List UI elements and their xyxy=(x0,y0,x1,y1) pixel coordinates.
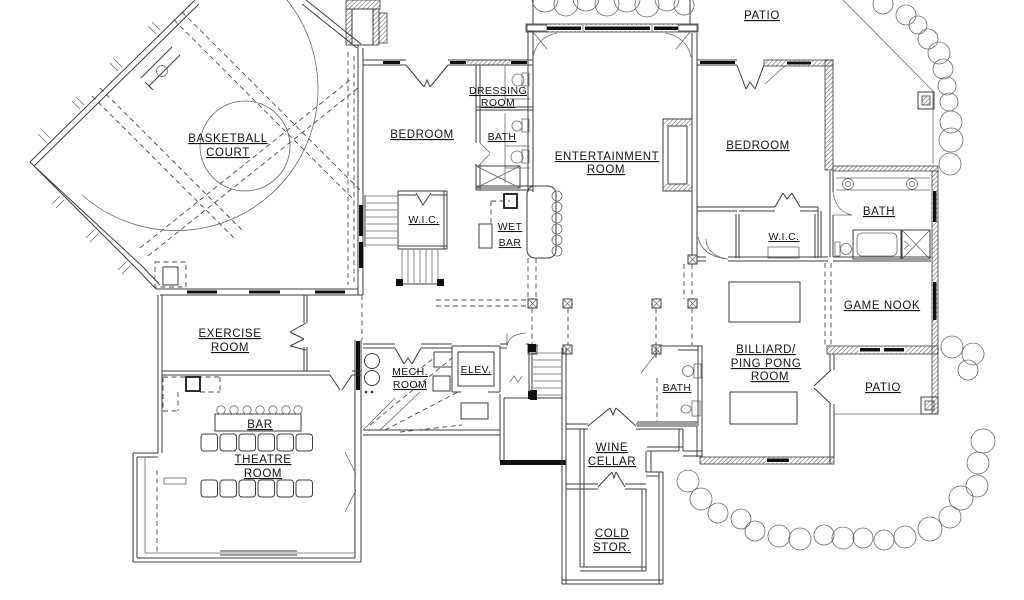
svg-text:BATH: BATH xyxy=(663,382,692,394)
svg-text:ROOM: ROOM xyxy=(481,97,515,109)
svg-text:ROOM: ROOM xyxy=(751,371,789,383)
svg-text:WINE: WINE xyxy=(596,442,628,454)
svg-text:CELLAR: CELLAR xyxy=(588,456,636,468)
svg-text:ROOM: ROOM xyxy=(393,379,427,391)
svg-text:COLD: COLD xyxy=(595,528,629,540)
svg-text:BAR: BAR xyxy=(247,419,272,431)
svg-text:ENTERTAINMENT: ENTERTAINMENT xyxy=(555,151,660,163)
svg-text:THEATRE: THEATRE xyxy=(234,454,291,466)
svg-text:ROOM: ROOM xyxy=(244,468,282,480)
svg-text:DRESSING: DRESSING xyxy=(469,85,527,97)
svg-text:STOR.: STOR. xyxy=(593,542,631,554)
svg-text:BATH: BATH xyxy=(488,131,517,143)
svg-text:BEDROOM: BEDROOM xyxy=(726,140,790,152)
svg-text:GAME NOOK: GAME NOOK xyxy=(844,300,920,312)
svg-text:BASKETBALL: BASKETBALL xyxy=(188,133,268,145)
svg-text:ROOM: ROOM xyxy=(587,164,625,176)
svg-text:PING PONG: PING PONG xyxy=(731,358,802,370)
svg-text:EXERCISE: EXERCISE xyxy=(199,328,262,340)
svg-text:MECH.: MECH. xyxy=(392,366,428,378)
svg-text:BATH: BATH xyxy=(863,206,895,218)
svg-text:W.I.C.: W.I.C. xyxy=(769,231,800,243)
svg-text:WET: WET xyxy=(498,221,523,233)
svg-text:BEDROOM: BEDROOM xyxy=(390,129,454,141)
svg-text:W.I.C.: W.I.C. xyxy=(409,214,440,226)
svg-text:PATIO: PATIO xyxy=(865,382,901,394)
svg-text:ROOM: ROOM xyxy=(211,342,249,354)
svg-text:BILLIARD/: BILLIARD/ xyxy=(736,344,796,356)
svg-text:BAR: BAR xyxy=(499,237,522,249)
svg-text:ELEV.: ELEV. xyxy=(461,364,492,376)
svg-text:PATIO: PATIO xyxy=(744,10,780,22)
svg-text:COURT: COURT xyxy=(206,147,250,159)
